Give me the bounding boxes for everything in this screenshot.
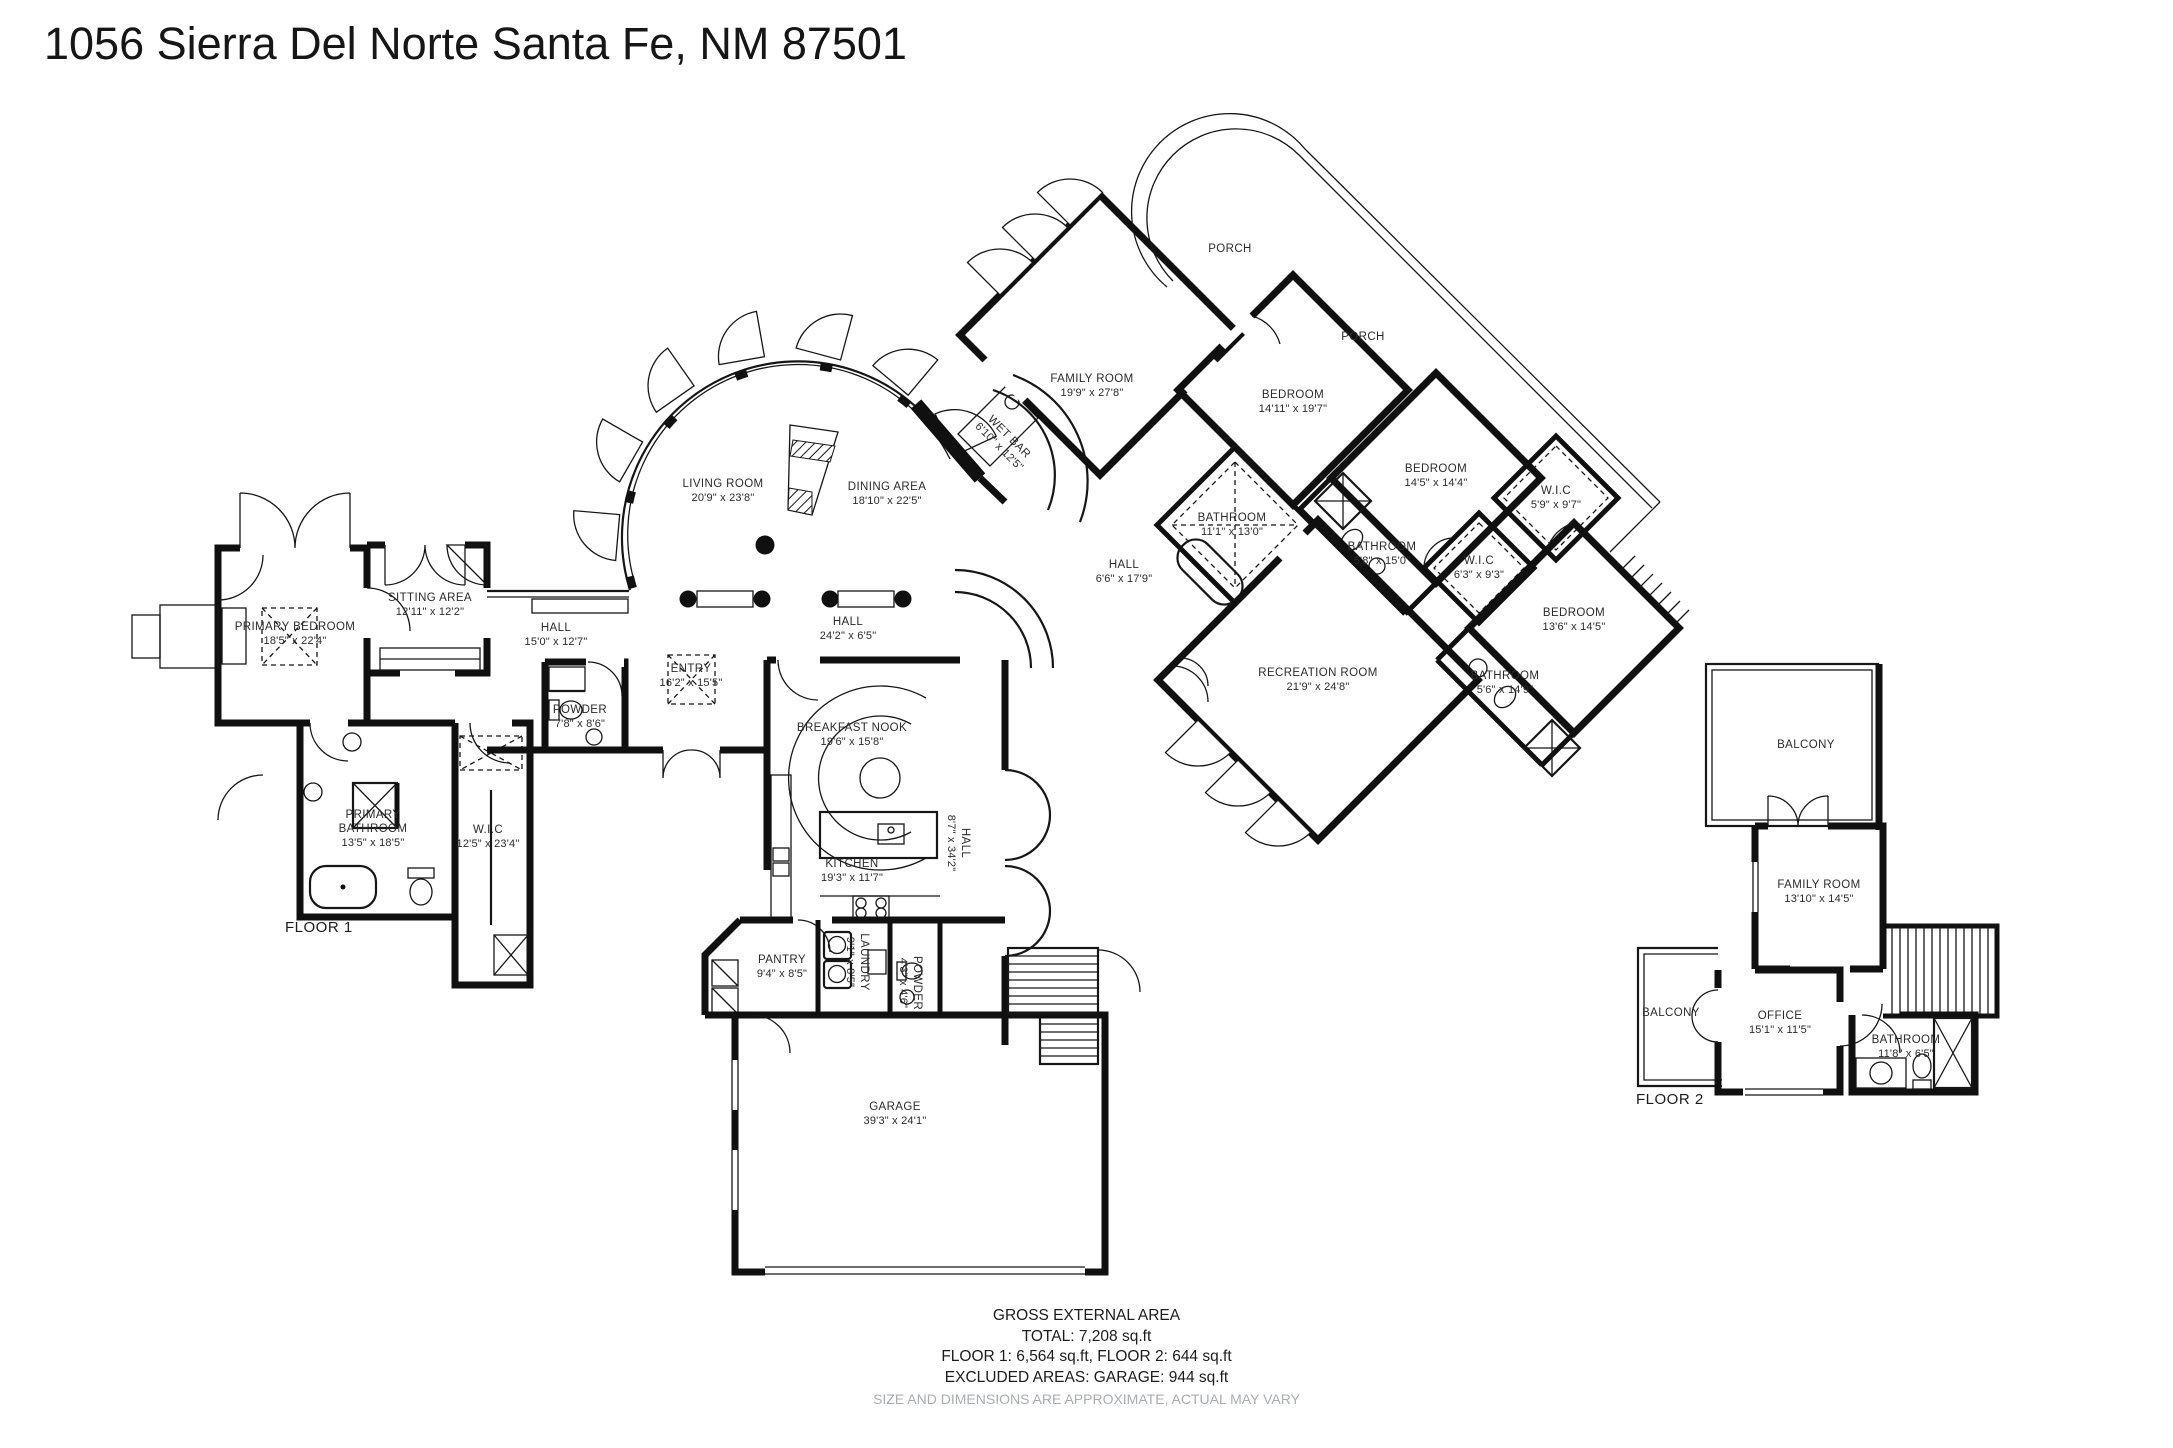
svg-text:8'7" x 34'2": 8'7" x 34'2" bbox=[945, 815, 957, 872]
dresser bbox=[222, 608, 246, 664]
svg-text:POWDER: POWDER bbox=[911, 956, 923, 1010]
pantry-shelves bbox=[712, 960, 738, 1014]
sink bbox=[343, 733, 361, 751]
column bbox=[754, 591, 771, 608]
window-seat bbox=[532, 599, 628, 613]
floor-areas: FLOOR 1: 6,564 sq.ft, FLOOR 2: 644 sq.ft bbox=[0, 1347, 2173, 1368]
primary-suite bbox=[132, 493, 530, 985]
room-label-balcony-top: BALCONY bbox=[1777, 739, 1835, 751]
column bbox=[680, 591, 697, 608]
fireplace bbox=[160, 605, 218, 668]
room-dims-bedroom-ne: 14'11" x 19'7" bbox=[1259, 403, 1327, 415]
excluded-areas: EXCLUDED AREAS: GARAGE: 944 sq.ft bbox=[0, 1368, 2173, 1389]
room-label-dining-area: DINING AREA bbox=[848, 481, 927, 493]
room-label-office: OFFICE bbox=[1758, 1010, 1803, 1022]
living-dining-bay bbox=[570, 304, 1088, 668]
room-dims-garage: 39'3" x 24'1" bbox=[864, 1115, 927, 1127]
room-dims-pantry: 9'4" x 8'5" bbox=[757, 968, 807, 980]
room-label-primary-bedroom: PRIMARY BEDROOM bbox=[235, 621, 356, 633]
room-dims-sitting-area: 12'11" x 12'2" bbox=[396, 606, 464, 618]
column bbox=[822, 591, 839, 608]
room-label-bedroom-ne: BEDROOM bbox=[1262, 389, 1324, 401]
window-seat bbox=[697, 591, 753, 607]
room-dims-dining-area: 18'10" x 22'5" bbox=[852, 495, 921, 507]
room-label-porch-1: PORCH bbox=[1208, 243, 1252, 255]
staircase-floor2 bbox=[1883, 926, 1997, 1016]
room-dims-bathroom-main: 11'1" x 13'0" bbox=[1201, 526, 1263, 538]
room-label-wic-2: W.I.C bbox=[1541, 485, 1571, 497]
room-label-living-room: LIVING ROOM bbox=[682, 478, 763, 490]
room-label-hall-bedrooms: HALL bbox=[1109, 559, 1140, 571]
column bbox=[895, 591, 912, 608]
fireplace bbox=[788, 425, 838, 515]
room-label-bathroom-4: BATHROOM bbox=[1872, 1034, 1941, 1046]
room-label-wic-primary: W.I.C bbox=[473, 824, 503, 836]
room-label-entry: ENTRY bbox=[671, 663, 712, 675]
room-dims-bathroom-2: 5'8" x 15'0" bbox=[1354, 555, 1411, 567]
floor-plan-drawing: PRIMARY BEDROOM 18'5" x 22'4" SITTING AR… bbox=[0, 0, 2173, 1448]
area-summary: GROSS EXTERNAL AREA TOTAL: 7,208 sq.ft F… bbox=[0, 1306, 2173, 1410]
room-label-laundry: LAUNDRY 9'1" x 8'5" bbox=[844, 933, 870, 991]
room-dims-family-room-2: 13'10" x 14'5" bbox=[1784, 893, 1853, 905]
disclaimer: SIZE AND DIMENSIONS ARE APPROXIMATE, ACT… bbox=[0, 1389, 2173, 1410]
room-dims-hall-bedrooms: 6'6" x 17'9" bbox=[1096, 573, 1153, 585]
room-label-bathroom-main: BATHROOM bbox=[1198, 512, 1267, 524]
svg-text:9'1" x 8'5": 9'1" x 8'5" bbox=[844, 937, 856, 987]
window-seat bbox=[838, 591, 894, 607]
room-dims-wic-3: 6'3" x 9'3" bbox=[1454, 569, 1504, 581]
room-dims-hall-west: 15'0" x 12'7" bbox=[525, 636, 588, 648]
room-dims-primary-bathroom: 13'5" x 18'5" bbox=[342, 837, 405, 849]
floor2-label: FLOOR 2 bbox=[1636, 1091, 1704, 1108]
toilet bbox=[408, 868, 434, 905]
room-label-breakfast-nook: BREAKFAST NOOK bbox=[797, 722, 907, 734]
room-label-sitting-area: SITTING AREA bbox=[388, 592, 472, 604]
room-label-family-room: FAMILY ROOM bbox=[1050, 373, 1133, 385]
room-label-bedroom-se: BEDROOM bbox=[1543, 607, 1605, 619]
room-dims-bathroom-4: 11'8" x 6'5" bbox=[1878, 1048, 1934, 1060]
room-label-bathroom-2: BATHROOM bbox=[1348, 541, 1417, 553]
closet-shelving bbox=[494, 935, 528, 975]
room-label-hall-south: HALL 8'7" x 34'2" bbox=[945, 815, 971, 872]
room-dims-primary-bedroom: 18'5" x 22'4" bbox=[264, 635, 327, 647]
room-label-primary-bathroom-2: BATHROOM bbox=[339, 823, 408, 835]
svg-text:LAUNDRY: LAUNDRY bbox=[858, 933, 870, 991]
total-area: TOTAL: 7,208 sq.ft bbox=[0, 1327, 2173, 1348]
shower bbox=[353, 783, 397, 828]
room-label-porch-2: PORCH bbox=[1341, 331, 1385, 343]
room-dims-wic-primary: 12'5" x 23'4" bbox=[457, 838, 520, 850]
room-dims-entry: 16'2" x 15'5" bbox=[660, 677, 723, 689]
room-dims-wic-2: 5'9" x 9'7" bbox=[1531, 499, 1581, 511]
room-dims-powder: 7'8" x 8'6" bbox=[555, 718, 605, 730]
room-label-bedroom-e: BEDROOM bbox=[1405, 463, 1467, 475]
column bbox=[756, 536, 775, 555]
bedroom-wing bbox=[960, 114, 1689, 865]
staircase bbox=[1008, 948, 1140, 1064]
room-label-balcony-left: BALCONY bbox=[1642, 1007, 1700, 1019]
gross-area-heading: GROSS EXTERNAL AREA bbox=[0, 1306, 2173, 1327]
room-dims-hall-center: 24'2" x 6'5" bbox=[820, 630, 877, 642]
room-dims-bedroom-e: 14'5" x 14'4" bbox=[1405, 477, 1468, 489]
room-label-bathroom-3: BATHROOM bbox=[1471, 670, 1540, 682]
garage-walls bbox=[705, 1015, 1105, 1278]
room-label-powder-2: POWDER 4'3" x 4'6" bbox=[897, 956, 923, 1010]
room-label-recreation: RECREATION ROOM bbox=[1258, 667, 1378, 679]
svg-text:4'3" x 4'6": 4'3" x 4'6" bbox=[897, 958, 909, 1008]
room-label-primary-bathroom: PRIMARY bbox=[346, 809, 401, 821]
floor1-label: FLOOR 1 bbox=[285, 919, 353, 936]
range bbox=[820, 896, 940, 920]
room-label-family-room-2: FAMILY ROOM bbox=[1777, 879, 1860, 891]
room-dims-family-room: 19'9" x 27'8" bbox=[1061, 387, 1124, 399]
floor-plan-page: 1056 Sierra Del Norte Santa Fe, NM 87501 bbox=[0, 0, 2173, 1448]
porch-outline bbox=[1132, 114, 1660, 552]
room-label-wic-3: W.I.C bbox=[1464, 555, 1494, 567]
svg-text:HALL: HALL bbox=[959, 828, 971, 859]
room-label-pantry: PANTRY bbox=[758, 954, 806, 966]
room-dims-recreation: 21'9" x 24'8" bbox=[1287, 681, 1350, 693]
room-label-hall-center: HALL bbox=[833, 616, 864, 628]
room-dims-office: 15'1" x 11'5" bbox=[1749, 1024, 1811, 1036]
sink bbox=[304, 783, 322, 801]
room-dims-bedroom-se: 13'6" x 14'5" bbox=[1543, 621, 1606, 633]
room-label-powder: POWDER bbox=[553, 704, 607, 716]
table bbox=[860, 758, 900, 798]
room-dims-kitchen: 19'3" x 11'7" bbox=[821, 872, 883, 884]
room-labels: PRIMARY BEDROOM 18'5" x 22'4" SITTING AR… bbox=[235, 243, 1941, 1127]
room-dims-breakfast-nook: 19'6" x 15'8" bbox=[821, 736, 884, 748]
room-label-kitchen: KITCHEN bbox=[825, 858, 878, 870]
room-dims-living-room: 20'9" x 23'8" bbox=[692, 492, 755, 504]
room-label-garage: GARAGE bbox=[869, 1101, 921, 1113]
room-dims-bathroom-3: 5'6" x 14'9" bbox=[1477, 684, 1534, 696]
room-label-hall-west: HALL bbox=[541, 622, 572, 634]
kitchen-island bbox=[820, 812, 937, 858]
